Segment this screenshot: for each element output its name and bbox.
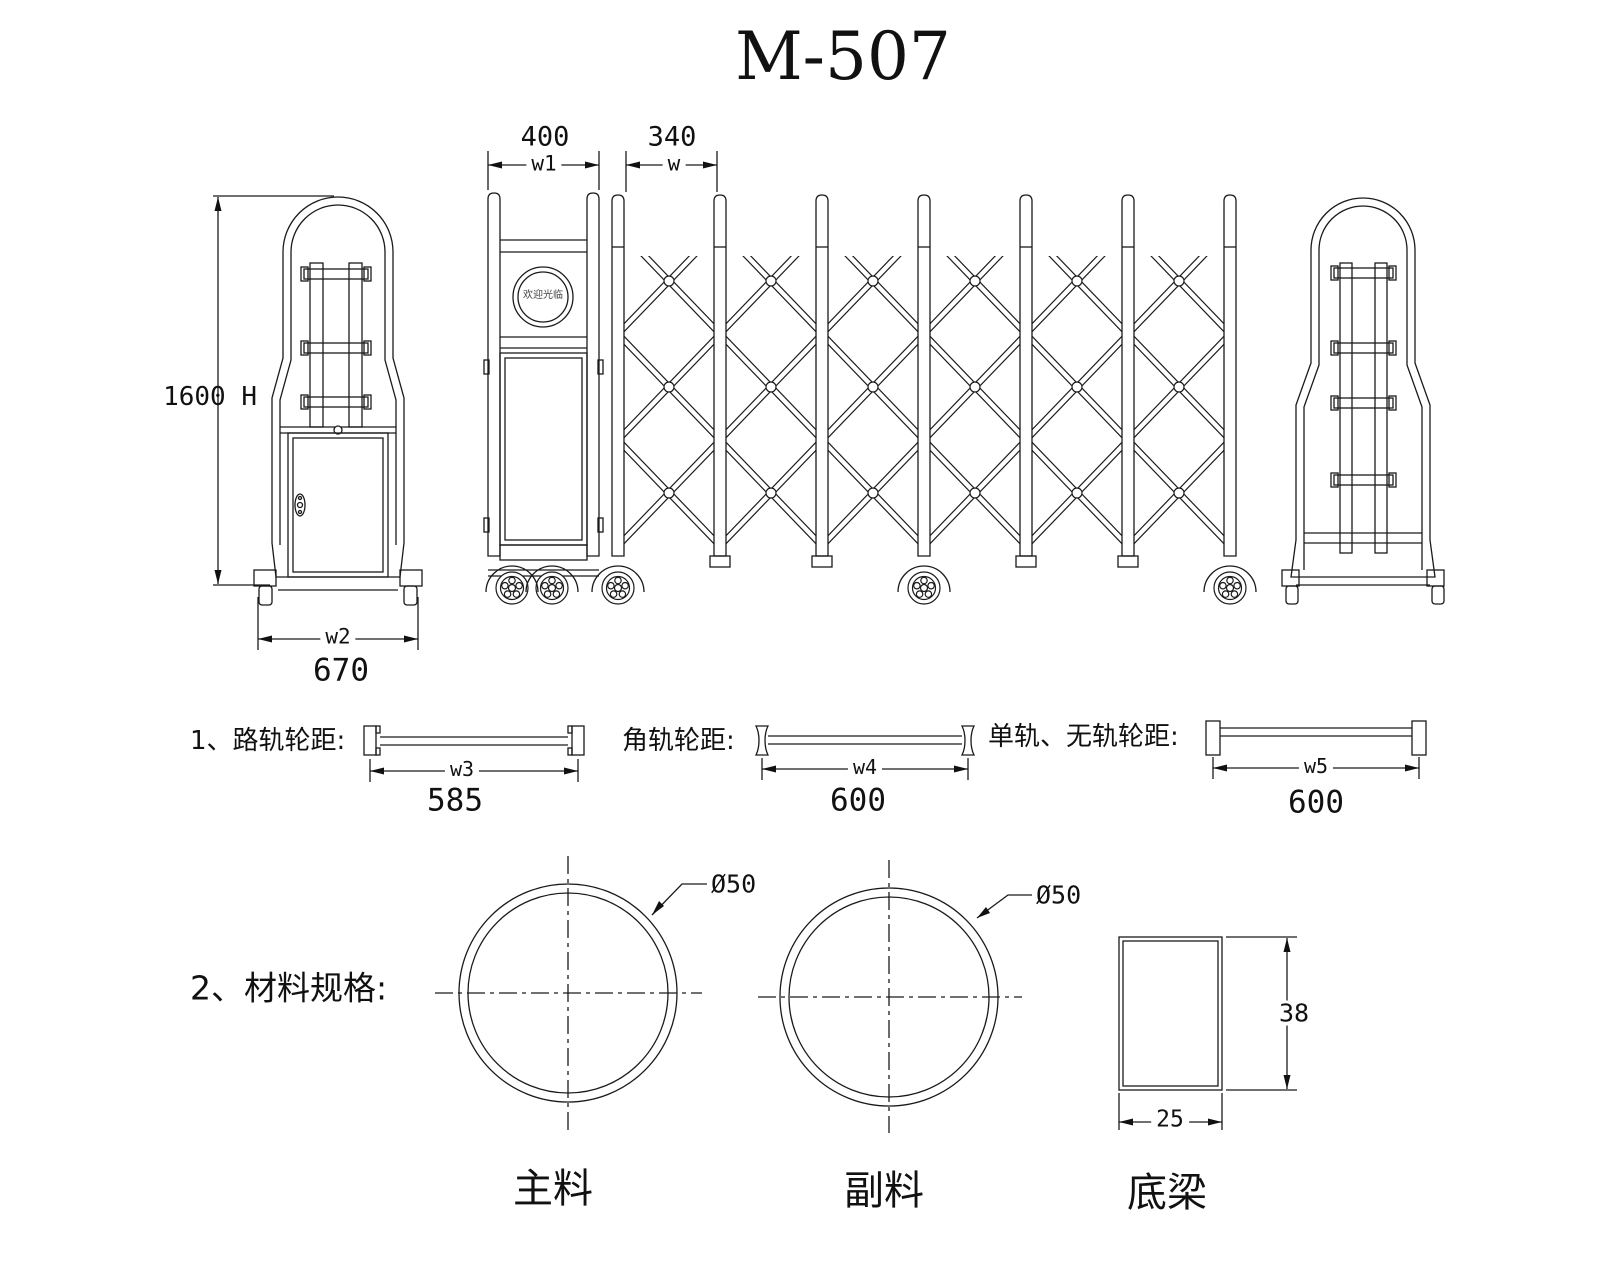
- main-post-view: [484, 193, 603, 604]
- dim-var-w3: w3: [445, 759, 479, 779]
- diameter-label-aux: Ø50: [1036, 883, 1081, 908]
- dim-value-585: 585: [427, 786, 483, 817]
- material-name-beam: 底梁: [1127, 1173, 1207, 1213]
- dim-var-w4: w4: [848, 757, 882, 777]
- materials-label: 2、材料规格:: [190, 972, 387, 1005]
- post-logo-text: 欢迎光临: [523, 291, 563, 301]
- track-label-road: 1、路轨轮距:: [190, 728, 345, 754]
- material-bottom-beam: [1119, 937, 1297, 1130]
- drawing-linework: [0, 0, 1600, 1280]
- left-post-view: [254, 197, 422, 605]
- track-label-single: 单轨、无轨轮距:: [988, 724, 1179, 750]
- height-dim-label: 1600 H: [163, 384, 257, 410]
- dim-var-w5: w5: [1299, 756, 1333, 776]
- dim-value-600-b: 600: [1288, 788, 1344, 819]
- material-name-aux: 副料: [844, 1171, 924, 1211]
- dim-var-w2: w2: [320, 627, 355, 648]
- tail-post-view: [1282, 198, 1444, 604]
- material-main-pipe: [435, 856, 707, 1130]
- material-name-main: 主料: [513, 1169, 593, 1209]
- dim-value-670: 670: [313, 656, 369, 687]
- dim-var-w1: w1: [526, 154, 561, 175]
- drawing-title: M-507: [735, 24, 951, 90]
- dim-value-38: 38: [1274, 1001, 1314, 1026]
- dim-var-w: w: [663, 154, 686, 175]
- drawing-canvas: M-507 1600 H w2 670 400 w1 340 w 欢迎光临 1、…: [0, 0, 1600, 1280]
- dim-value-400: 400: [521, 124, 570, 151]
- material-aux-pipe: [758, 860, 1032, 1133]
- track-label-corner: 角轨轮距:: [622, 728, 735, 754]
- gate-lattice: [592, 195, 1256, 604]
- dim-value-25: 25: [1151, 1109, 1189, 1132]
- dim-value-600-a: 600: [830, 786, 886, 817]
- dim-value-340: 340: [648, 124, 697, 151]
- diameter-label-main: Ø50: [711, 872, 756, 897]
